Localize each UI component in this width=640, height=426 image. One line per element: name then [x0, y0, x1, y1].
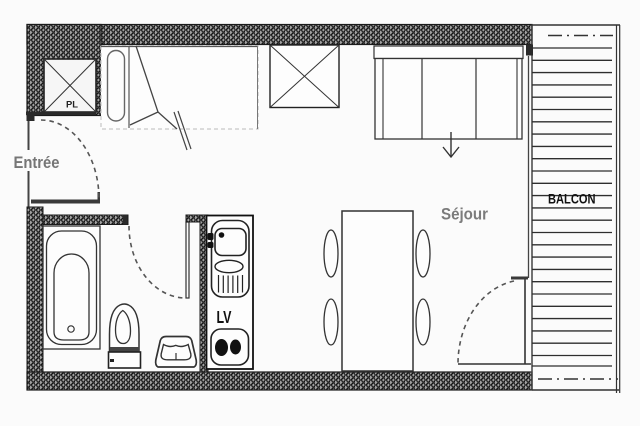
svg-text:PL: PL [66, 100, 78, 111]
svg-text:LV: LV [217, 307, 232, 327]
svg-text:BALCON: BALCON [548, 192, 596, 207]
svg-text:Séjour: Séjour [441, 206, 489, 224]
svg-text:Entrée: Entrée [14, 153, 60, 172]
